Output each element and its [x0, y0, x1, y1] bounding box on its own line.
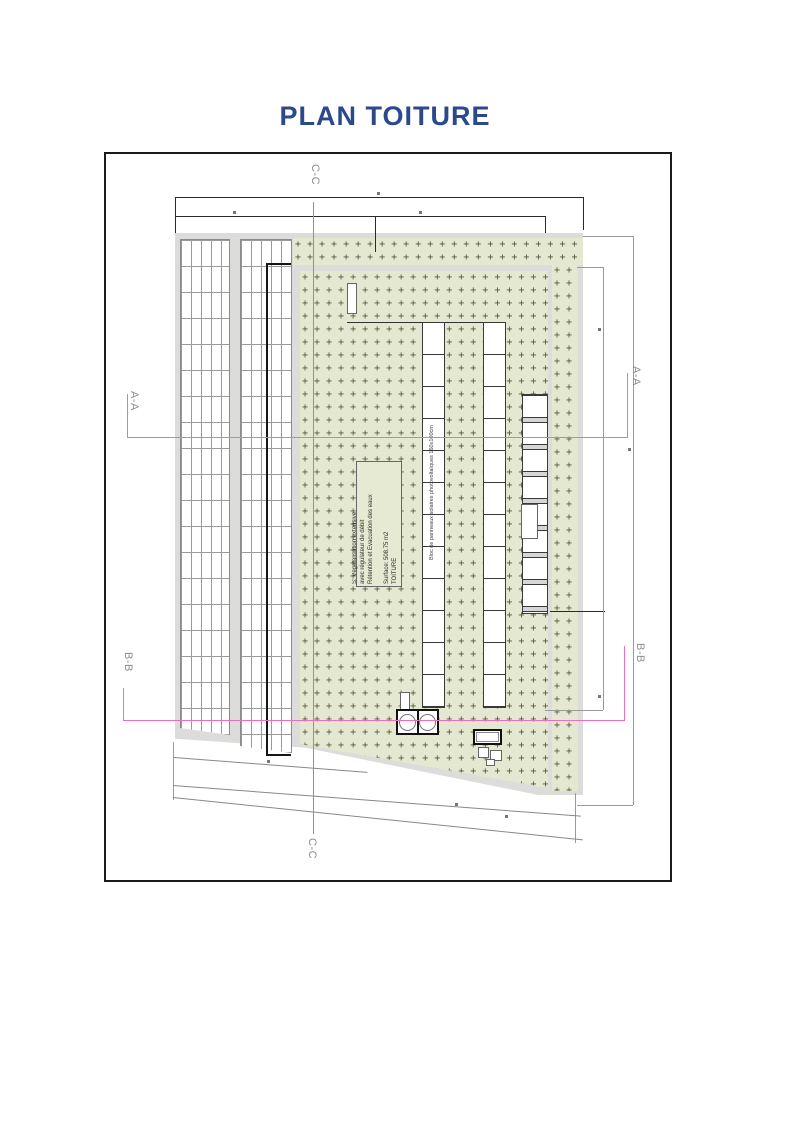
dim-line: [545, 710, 603, 711]
roof-note-line3: Rétention et Evacuation des eaux: [367, 464, 375, 584]
green-roof-band-top: ++++++++++++++++++++++++++ +++++++++++++…: [293, 238, 583, 265]
document-page: PLAN TOITURE ++++++++++++++++++++++++++ …: [0, 0, 794, 1123]
page-title: PLAN TOITURE: [0, 101, 770, 132]
dim-tick: [233, 211, 236, 214]
dim-line: [577, 805, 633, 806]
dim-tick: [455, 803, 458, 806]
roof-note-spacer: [375, 464, 383, 584]
section-line-bb-end: [123, 688, 124, 721]
dim-line: [175, 197, 583, 198]
dim-extension: [545, 216, 546, 233]
section-label-cc-top: C-C: [309, 164, 321, 185]
dim-line: [175, 216, 545, 217]
vent-circle-icon: [419, 714, 436, 731]
dim-tick: [377, 192, 380, 195]
drain-marker-2: [521, 504, 538, 539]
dim-tick: [419, 211, 422, 214]
section-label-aa-left: A-A: [128, 391, 140, 411]
solar-array-column-2: [483, 322, 506, 708]
roof-note-line4: avec régulateur de débit: [359, 464, 367, 584]
roof-note-surface: Surface: 508.75 m2: [383, 464, 391, 584]
vent-circle-icon: [399, 714, 416, 731]
paving-strip-1: [180, 239, 230, 735]
section-line-aa: [127, 437, 627, 438]
roof-note-line5: S: Végétalisation extensive: [351, 464, 359, 584]
section-line-bb: [123, 720, 624, 721]
vent-unit: [396, 709, 439, 735]
dim-line: [603, 267, 604, 710]
vent-cell-2: [417, 711, 438, 733]
dim-tick: [598, 695, 601, 698]
solar-array-label: Bloc de panneaux solaires photovoltaïque…: [424, 402, 435, 560]
dim-tick: [267, 760, 270, 763]
section-line-bb-end: [624, 646, 625, 721]
vent-cell-1: [398, 711, 417, 733]
dim-tick: [628, 448, 631, 451]
dim-line: [583, 236, 633, 237]
small-equipment-3: [486, 759, 495, 766]
drain-marker-3: [400, 692, 410, 710]
access-hatch: [473, 729, 502, 745]
section-label-cc-bottom: C-C: [306, 838, 318, 859]
section-line-aa-end: [627, 373, 628, 438]
small-equipment-1: [478, 747, 489, 758]
section-label-bb-right: B-B: [634, 643, 646, 663]
access-hatch-inner: [476, 732, 499, 742]
dim-tick: [505, 815, 508, 818]
section-label-bb-left: B-B: [122, 652, 134, 672]
roof-note-title: TOITURE: [391, 464, 399, 584]
section-line-cc: [313, 202, 314, 834]
dim-extension: [173, 742, 174, 800]
dim-extension: [583, 197, 584, 230]
dim-line: [577, 267, 603, 268]
dim-extension: [575, 793, 576, 843]
dim-extension: [375, 216, 376, 252]
parapet-outline: [266, 263, 291, 756]
drain-marker-1: [347, 283, 357, 314]
green-roof-strip-right: ++++ ++++ ++++ ++++ ++++ ++++ ++++ ++++ …: [552, 264, 578, 791]
dim-tick: [598, 328, 601, 331]
dim-leader: [550, 611, 605, 612]
section-label-aa-right: A-A: [630, 366, 642, 386]
roof-note-box: TOITURE Surface: 508.75 m2 Rétention et …: [356, 461, 402, 587]
dim-line: [633, 236, 634, 805]
dim-extension: [175, 197, 176, 233]
